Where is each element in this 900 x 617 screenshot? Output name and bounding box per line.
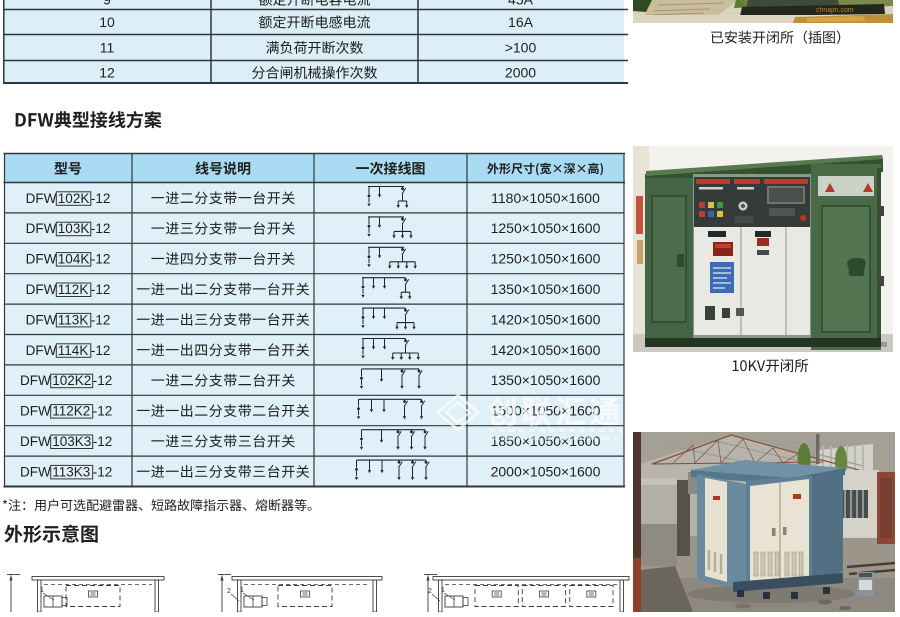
svg-text:1350×1050×1600: 1350×1050×1600 xyxy=(491,372,601,388)
svg-text:DFW: DFW xyxy=(26,191,57,206)
svg-text:1250×1050×1600: 1250×1050×1600 xyxy=(491,251,601,267)
svg-text:DFW: DFW xyxy=(26,312,57,327)
svg-text:2000: 2000 xyxy=(505,65,536,81)
svg-text:45A: 45A xyxy=(508,0,534,8)
svg-text:16A: 16A xyxy=(508,14,534,30)
svg-text:1350×1050×1600: 1350×1050×1600 xyxy=(491,281,601,297)
svg-text:-12: -12 xyxy=(93,404,113,419)
svg-text:1420×1050×1600: 1420×1050×1600 xyxy=(491,342,601,358)
svg-text:12: 12 xyxy=(99,65,115,81)
svg-text:-12: -12 xyxy=(91,282,111,297)
svg-text:chnajm.com: chnajm.com xyxy=(816,7,854,14)
svg-text:DFW: DFW xyxy=(26,282,57,297)
svg-text:-12: -12 xyxy=(91,343,111,358)
svg-text:DFW: DFW xyxy=(26,343,57,358)
svg-text:103K: 103K xyxy=(58,221,90,236)
svg-text:11: 11 xyxy=(100,40,115,56)
svg-text:104K: 104K xyxy=(58,252,90,267)
svg-text:113K: 113K xyxy=(58,312,89,327)
svg-text:113K3: 113K3 xyxy=(52,464,90,479)
svg-text:DFW: DFW xyxy=(20,464,51,479)
svg-text:112K: 112K xyxy=(58,282,89,297)
svg-text:>100: >100 xyxy=(505,40,537,56)
svg-text:10: 10 xyxy=(99,14,115,30)
svg-text:2: 2 xyxy=(428,588,432,595)
svg-text:2: 2 xyxy=(227,588,231,595)
svg-text:114K: 114K xyxy=(58,343,89,358)
svg-text:DFW: DFW xyxy=(26,221,57,236)
svg-text:-12: -12 xyxy=(91,191,111,206)
svg-text:103K3: 103K3 xyxy=(52,434,91,449)
svg-text:-12: -12 xyxy=(93,464,113,479)
svg-text:DFW: DFW xyxy=(20,434,51,449)
svg-text:1850×1050×1600: 1850×1050×1600 xyxy=(491,433,601,449)
svg-text:DFW: DFW xyxy=(20,404,51,419)
svg-text:-12: -12 xyxy=(91,252,111,267)
svg-text:-12: -12 xyxy=(93,434,113,449)
svg-text:102K: 102K xyxy=(58,191,90,206)
svg-text:9: 9 xyxy=(103,0,111,8)
svg-text:1250×1050×1600: 1250×1050×1600 xyxy=(491,220,601,236)
svg-text:-12: -12 xyxy=(91,312,111,327)
svg-text:1420×1050×1600: 1420×1050×1600 xyxy=(491,311,601,327)
svg-text:2000×1050×1600: 2000×1050×1600 xyxy=(491,463,601,479)
svg-text:DFW: DFW xyxy=(20,373,51,388)
svg-text:DFW: DFW xyxy=(26,252,57,267)
svg-text:-12: -12 xyxy=(93,373,113,388)
svg-text:102K2: 102K2 xyxy=(52,373,91,388)
svg-text:112K2: 112K2 xyxy=(52,404,90,419)
svg-text:-12: -12 xyxy=(91,221,111,236)
svg-text:1180×1050×1600: 1180×1050×1600 xyxy=(491,190,600,206)
